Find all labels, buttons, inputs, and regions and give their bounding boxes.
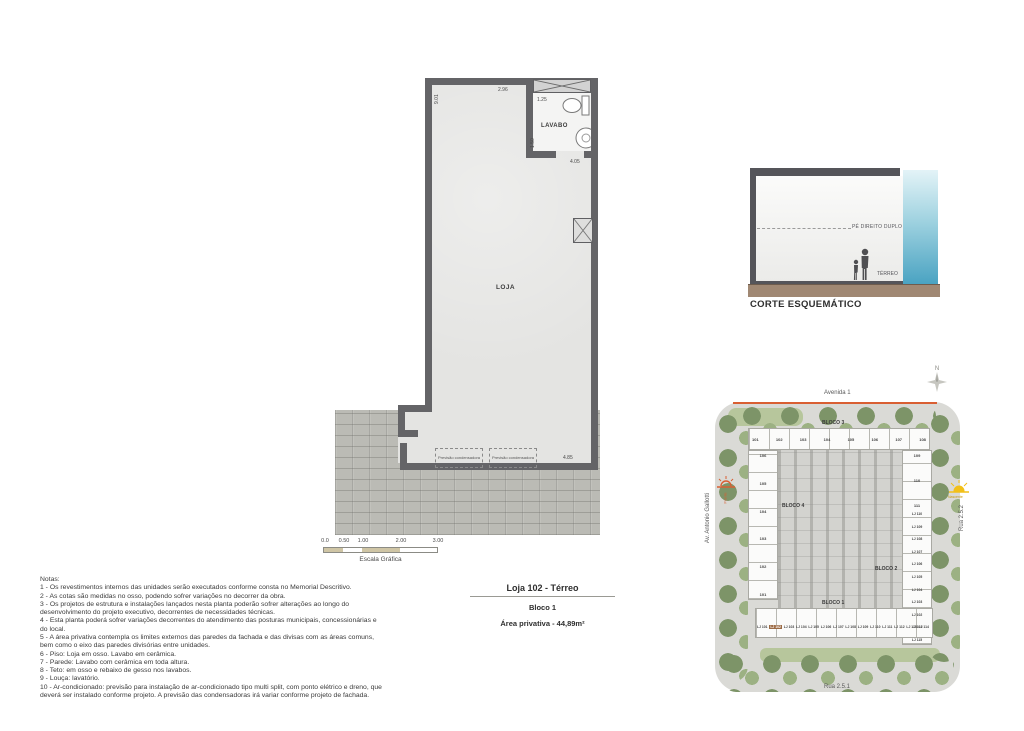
list-item: LJ 109 (858, 625, 869, 629)
wall-entry-step-h (398, 405, 432, 412)
street-label-left: Av. Antonio Gallotti (705, 488, 711, 548)
sun-west-label: Poente (724, 492, 728, 503)
dim-left-height: 9.01 (434, 94, 440, 104)
section-roof-slab (750, 168, 900, 176)
sunrise-east-icon (948, 480, 970, 494)
wall-lavabo-bottom-jamb (584, 151, 591, 158)
scale-segment (343, 548, 362, 552)
list-item: LJ 102 (769, 625, 782, 629)
title-block: Loja 102 - Térreo Bloco 1 Área privativa… (470, 583, 615, 628)
bloco4-label: BLOCO 4 (782, 503, 804, 509)
scale-bar-graphic (323, 547, 438, 553)
bloco2-label: BLOCO 2 (875, 566, 897, 572)
x-brace-icon (534, 80, 590, 92)
list-item: 9 - Louça: lavatório. (40, 675, 386, 683)
shaft-box-icon (533, 79, 591, 93)
bloco4-units: 106105104103102101 (752, 453, 774, 597)
bloco2-upper-units: 109110111 (906, 453, 928, 508)
scale-tick: 0.0 (321, 538, 329, 544)
bloco3-label: BLOCO 3 (822, 420, 844, 426)
list-item: LJ 109 (912, 525, 923, 529)
section-left-wall (750, 168, 756, 284)
list-item: LJ 107 (833, 625, 844, 629)
scale-tick: 3.00 (433, 538, 444, 544)
notes-header: Notas: (40, 576, 386, 584)
list-item: LJ 111 (882, 625, 892, 629)
wall-lavabo-bottom-left (526, 151, 556, 158)
people-silhouette-icon (852, 248, 872, 281)
title-divider (470, 596, 615, 597)
list-item: 102 (760, 564, 767, 569)
dim-top-width: 2.96 (498, 87, 508, 93)
list-item: 107 (895, 437, 902, 442)
list-item: LJ 115 (912, 638, 922, 642)
list-item: 104 (824, 437, 831, 442)
dim-bottom-width: 4.85 (563, 455, 573, 461)
street-label-top: Avenida 1 (824, 390, 851, 396)
list-item: 103 (760, 536, 767, 541)
list-item: 106 (760, 453, 767, 458)
block-subtitle: Bloco 1 (470, 603, 615, 612)
list-item: 8 - Teto: em osso e rebaixo de gesso nos… (40, 667, 386, 675)
sink-icon (571, 125, 591, 151)
right-wall-shaft-icon (573, 218, 593, 243)
list-item: LJ 110 (870, 625, 880, 629)
scale-tick: 2.00 (396, 538, 407, 544)
list-item: 1 - Os revestimentos internos das unidad… (40, 584, 386, 592)
list-item: 106 (871, 437, 878, 442)
list-item: LJ 104 (912, 588, 923, 592)
list-item: LJ 107 (912, 550, 923, 554)
list-item: LJ 114 (919, 625, 929, 629)
scale-segment (400, 548, 437, 552)
x-brace-icon (574, 219, 592, 242)
list-item: LJ 113 (906, 625, 916, 629)
compass-rose-icon (927, 372, 947, 392)
graphic-scale: 0.0 0.50 1.00 2.00 3.00 Escala Gráfica (323, 538, 453, 563)
section-title: CORTE ESQUEMÁTICO (750, 299, 862, 310)
section-sky-gradient (903, 170, 938, 284)
lavabo-room-label: LAVABO (541, 123, 568, 129)
notes-block: Notas: 1 - Os revestimentos internos das… (40, 576, 386, 700)
central-courtyard (778, 450, 902, 608)
list-item: 4 - Esta planta poderá sofrer variações … (40, 617, 386, 634)
drawing-sheet: Previsão condensadora Previsão condensad… (0, 0, 1024, 731)
wall-entry-pier (400, 443, 407, 470)
dim-lavabo-bottom: 4.05 (570, 159, 580, 165)
list-item: 7 - Parede: Lavabo com cerâmica em toda … (40, 659, 386, 667)
sun-east-label: Nascente (948, 495, 963, 499)
dim-lavabo-width: 1.25 (537, 97, 547, 103)
list-item: 105 (760, 481, 767, 486)
list-item: 108 (919, 437, 926, 442)
dim-lavabo-height: 1.50 (530, 138, 536, 148)
sunset-west-icon (716, 476, 736, 489)
wall-left (425, 78, 432, 412)
list-item: 101 (752, 437, 759, 442)
double-height-dashed-line (757, 228, 851, 229)
scale-caption: Escala Gráfica (323, 556, 438, 563)
list-item: LJ 103 (912, 600, 923, 604)
condenser-provision-box: Previsão condensadora (489, 448, 537, 468)
list-item: 110 (914, 478, 920, 483)
list-item: LJ 104 (796, 625, 807, 629)
list-item: 104 (760, 509, 767, 514)
list-item: LJ 108 (912, 537, 923, 541)
list-item: 102 (776, 437, 783, 442)
list-item: LJ 105 (912, 575, 923, 579)
toilet-icon (561, 95, 591, 117)
street-label-right: Rua 2.5.2 (959, 498, 965, 538)
terreo-label: TÉRREO (877, 271, 898, 277)
list-item: 109 (914, 453, 921, 458)
list-item: LJ 101 (757, 625, 768, 629)
north-arrow-icon: N (927, 366, 947, 394)
scale-tick: 0.50 (339, 538, 350, 544)
scale-tick-labels: 0.0 0.50 1.00 2.00 3.00 (323, 538, 453, 545)
bloco1-label: BLOCO 1 (822, 600, 844, 606)
list-item: LJ 108 (845, 625, 856, 629)
list-item: 103 (800, 437, 807, 442)
bloco1-lj-units: LJ 101LJ 102LJ 103LJ 104LJ 105LJ 106LJ 1… (757, 620, 929, 634)
list-item: LJ 106 (912, 562, 923, 566)
list-item: 2 - As cotas são medidas no osso, podend… (40, 593, 386, 601)
list-item: 10 - Ar-condicionado: previsão para inst… (40, 684, 386, 701)
scale-tick: 1.00 (358, 538, 369, 544)
wall-right (591, 78, 598, 470)
section-ground (748, 284, 940, 297)
list-item: 105 (848, 437, 855, 442)
list-item: 3 - Os projetos de estrutura e instalaçõ… (40, 601, 386, 618)
list-item: 6 - Piso: Loja em osso. Lavabo em cerâmi… (40, 651, 386, 659)
street-label-bottom: Rua 2.5.1 (824, 684, 850, 690)
list-item: LJ 102 (912, 613, 923, 617)
list-item: 111 (914, 503, 920, 508)
tree-row-left (716, 412, 748, 682)
list-item: 5 - A área privativa contempla os limite… (40, 634, 386, 651)
unit-title: Loja 102 - Térreo (470, 583, 615, 593)
list-item: LJ 110 (912, 512, 922, 516)
pe-direito-duplo-label: PÉ DIREITO DUPLO (852, 224, 902, 230)
wall-entry-stub (398, 430, 418, 437)
condenser-provision-box: Previsão condensadora (435, 448, 483, 468)
list-item: LJ 103 (784, 625, 795, 629)
private-area-label: Área privativa - 44,89m² (470, 619, 615, 628)
tree-row-top (740, 404, 936, 430)
scale-segment (324, 548, 343, 552)
list-item: LJ 105 (808, 625, 819, 629)
loja-room-label: LOJA (496, 284, 515, 291)
list-item: 101 (760, 592, 767, 597)
list-item: LJ 106 (821, 625, 832, 629)
bloco3-units: 101102103104105106107108 (752, 430, 926, 448)
notes-list: 1 - Os revestimentos internos das unidad… (40, 584, 386, 700)
list-item: LJ 112 (894, 625, 904, 629)
scale-segment (362, 548, 400, 552)
